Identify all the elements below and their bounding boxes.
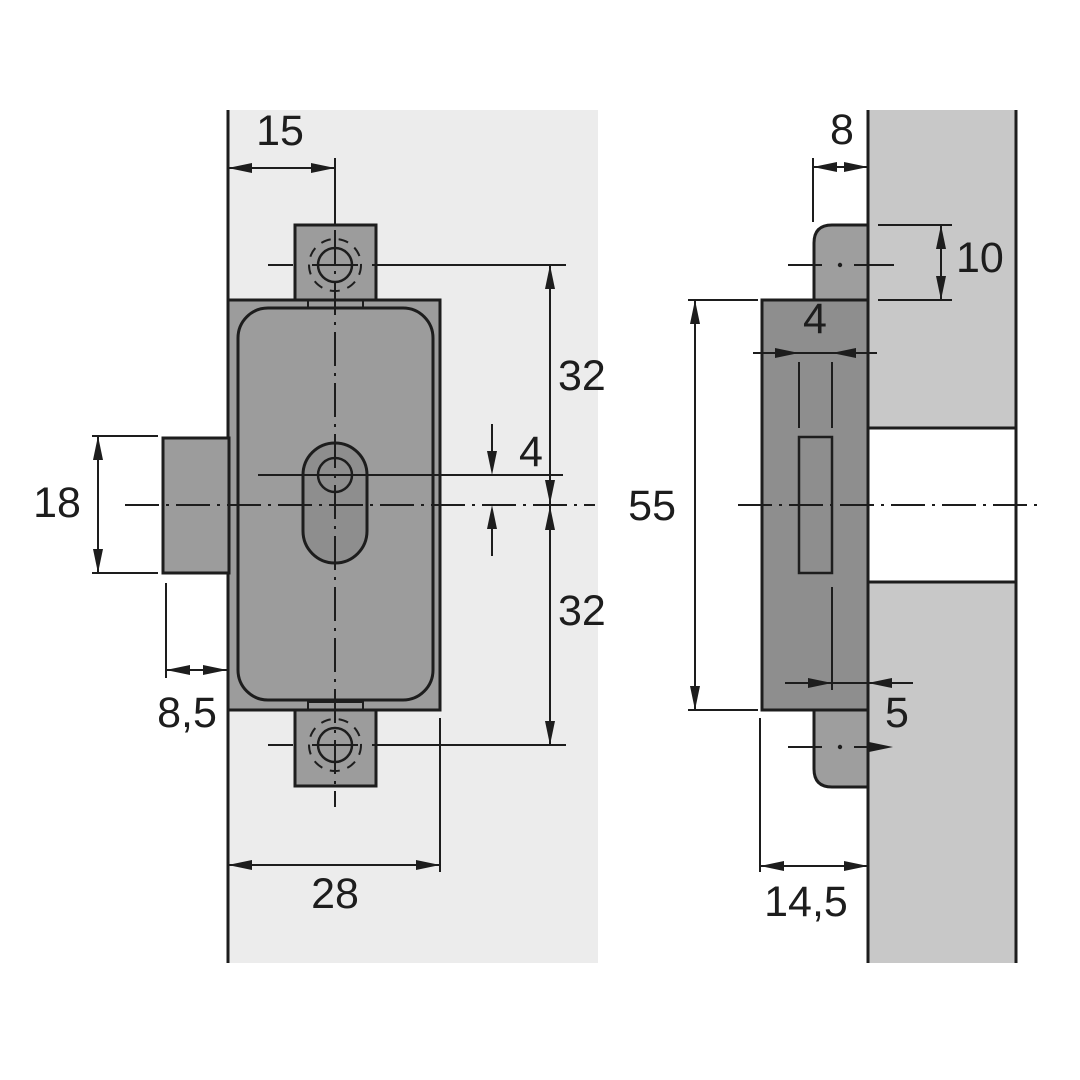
side-screw-tab-top	[814, 225, 868, 300]
dim-label-14-5: 14,5	[764, 878, 848, 926]
front-view: 15 32 4 32	[33, 107, 606, 963]
dim-label-18: 18	[33, 479, 81, 527]
dim-label-4-front: 4	[519, 428, 543, 476]
dim-label-10: 10	[956, 234, 1004, 282]
dim-label-8-5: 8,5	[157, 689, 217, 737]
drawing-canvas: 15 32 4 32	[0, 0, 1080, 1080]
dim-label-4-side: 4	[803, 295, 827, 343]
dim-label-32-bottom: 32	[558, 587, 606, 635]
dim-label-55: 55	[628, 482, 676, 530]
dim-label-28: 28	[311, 870, 359, 918]
dim-label-15: 15	[256, 107, 304, 155]
side-view: 8 10 4 55	[628, 106, 1040, 963]
dim-bolt-protrusion: 8,5	[157, 583, 227, 737]
dim-label-32-top: 32	[558, 352, 606, 400]
dim-tab-depth: 8	[813, 106, 868, 222]
dim-label-5: 5	[885, 689, 909, 737]
dim-label-8: 8	[830, 106, 854, 154]
technical-drawing: 15 32 4 32	[0, 0, 1080, 1080]
